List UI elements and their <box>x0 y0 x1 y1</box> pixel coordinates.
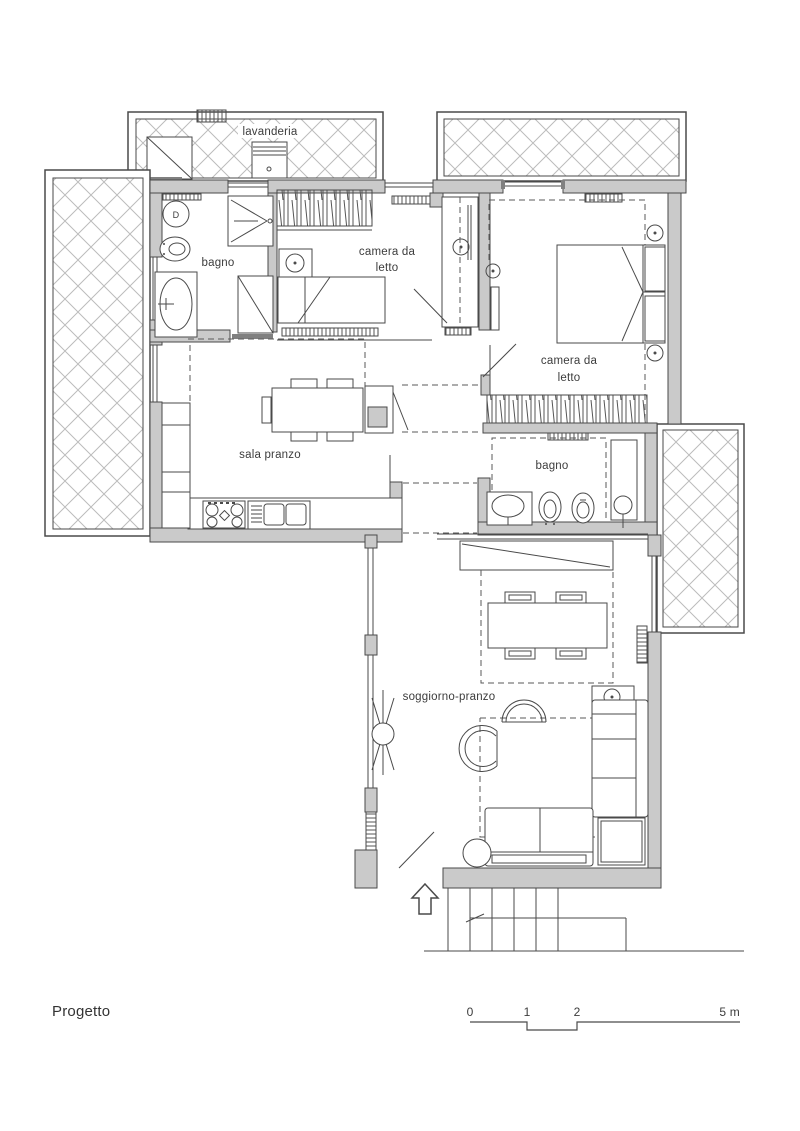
chair-icon <box>556 648 586 659</box>
coffee-table-icon <box>598 818 645 865</box>
living-dining-room: soggiorno-pranzo <box>372 534 648 867</box>
scale-bar: 0 1 2 5 m <box>467 1005 740 1030</box>
scale-tick-0: 0 <box>467 1005 474 1019</box>
room-label-bagno-upper: bagno <box>202 257 235 269</box>
floor-plan-drawing: lavanderia <box>0 0 800 1131</box>
room-label-bagno-lower: bagno <box>536 460 569 472</box>
chair-icon <box>327 432 353 441</box>
stool-icon <box>365 386 408 433</box>
shower-tray-icon <box>147 137 192 181</box>
wardrobe-icon <box>277 190 372 230</box>
radiator-icon <box>392 196 430 204</box>
terrace-top-right <box>437 112 686 181</box>
window-icon <box>228 183 268 187</box>
scale-tick-5m: 5 m <box>719 1005 740 1019</box>
room-label-sala-pranzo: sala pranzo <box>239 449 301 461</box>
shower-icon <box>611 440 637 528</box>
scale-tick-2: 2 <box>574 1005 581 1019</box>
window-icon <box>652 556 656 632</box>
room-label-soggiorno: soggiorno-pranzo <box>403 691 496 703</box>
armchair-icon <box>502 700 546 722</box>
radiator-icon <box>282 328 378 336</box>
dining-table-icon <box>488 592 607 659</box>
radiator-icon <box>366 812 376 850</box>
chair-icon <box>327 379 353 388</box>
bidet-icon <box>572 493 594 523</box>
cabinet-column <box>162 403 190 528</box>
bathroom-lower: bagno <box>487 433 637 528</box>
single-bed-icon <box>278 277 385 323</box>
corridor <box>390 345 490 533</box>
window-icon <box>385 183 433 204</box>
armchair-icon <box>459 726 497 772</box>
drawing-title: Progetto <box>52 1003 110 1020</box>
shower-icon <box>228 196 273 333</box>
radiator-icon <box>585 194 622 202</box>
room-label-camera1-line2: letto <box>376 262 399 274</box>
chair-icon <box>291 379 317 388</box>
bathtub-icon <box>155 272 197 337</box>
fan-coil-icon <box>372 690 394 775</box>
terrace-right <box>657 424 744 633</box>
dining-room: sala pranzo <box>162 339 408 529</box>
threshold <box>232 334 273 339</box>
floor-plan-page: lavanderia <box>0 0 800 1131</box>
chair-icon <box>262 397 271 423</box>
bedroom-2: camera da letto <box>483 194 665 423</box>
wardrobe-icon <box>487 395 647 423</box>
room-label-camera1-line1: camera da <box>359 246 416 258</box>
vent-icon <box>197 110 226 122</box>
svg-text:D: D <box>173 210 180 220</box>
terrace-left <box>45 170 150 536</box>
door-swing-icon <box>399 832 434 868</box>
radiator-icon <box>548 433 588 440</box>
room-label-camera2-line2: letto <box>558 372 581 384</box>
sink-icon <box>487 492 532 525</box>
toilet-icon: D <box>163 201 189 227</box>
nightstand-icon <box>279 249 312 277</box>
bathroom-upper: D bagno <box>155 194 273 337</box>
bedroom-1: camera da letto <box>277 190 500 336</box>
room-label-camera2-line1: camera da <box>541 355 598 367</box>
double-bed-icon <box>557 245 665 343</box>
chair-icon <box>505 648 535 659</box>
dining-table-icon <box>262 379 363 441</box>
door-swing-icon <box>483 344 516 377</box>
radiator-icon <box>637 626 647 663</box>
window-icon <box>368 548 373 635</box>
scale-tick-1: 1 <box>524 1005 531 1019</box>
washing-machine-icon <box>252 142 287 178</box>
stairs-icon <box>424 888 744 951</box>
entrance-arrow-icon <box>412 884 438 914</box>
chair-icon <box>291 432 317 441</box>
side-table-icon <box>463 839 491 867</box>
terrace-laundry: lavanderia <box>128 110 383 181</box>
chair-icon <box>556 592 586 603</box>
window-icon <box>153 345 157 402</box>
radiator-icon <box>163 194 201 200</box>
room-label-lavanderia: lavanderia <box>242 126 297 138</box>
chair-icon <box>505 592 535 603</box>
closet-icon <box>460 541 613 570</box>
entry <box>399 832 438 914</box>
toilet-icon <box>539 492 561 525</box>
bidet-icon <box>160 237 190 261</box>
kitchen-counter <box>188 498 402 529</box>
